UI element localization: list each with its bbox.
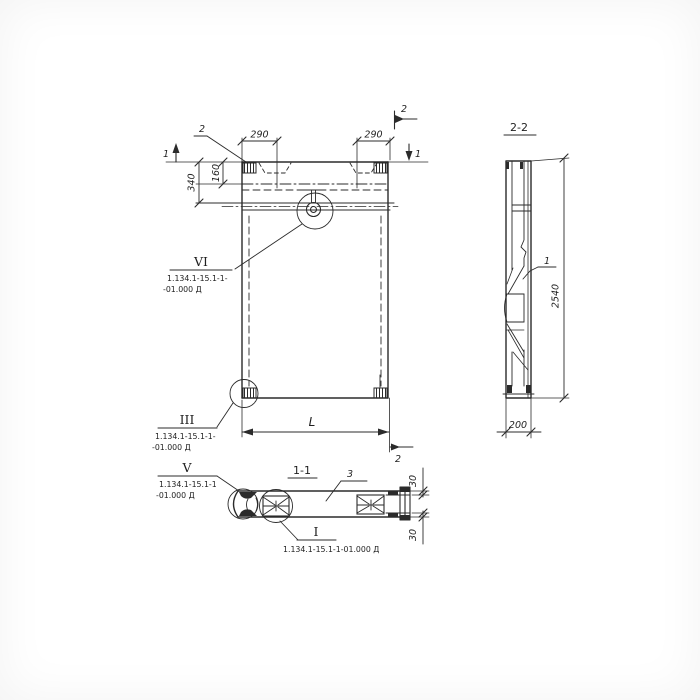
keyway-socket-mid [357, 495, 384, 514]
cut-mark-1-right: 1 [406, 144, 422, 161]
dim-200-value: 200 [509, 420, 527, 431]
lower-diagonal-1 [507, 324, 524, 352]
leader-line [280, 521, 298, 540]
arrow-up-icon [173, 143, 180, 153]
arrow-right-icon [378, 429, 389, 436]
embed-hatch-bottom-right [374, 388, 387, 398]
cap-socket-lines [247, 498, 258, 511]
dim-290-left-value: 290 [250, 130, 268, 141]
leader-line [217, 403, 233, 427]
leader-line [194, 136, 246, 162]
inner-line-right [521, 161, 526, 386]
cut-mark-1-right-label: 1 [415, 149, 421, 160]
cap-wedge-top [239, 492, 257, 499]
drawing-sheet: 290 290 340 160 1 [0, 0, 700, 700]
end-tab-top [388, 491, 398, 496]
leader-line [217, 476, 239, 491]
embed-mark-top-left [506, 162, 509, 169]
detail-i-label: I [314, 524, 319, 539]
dim-2540: 2540 [531, 154, 569, 402]
detail-i-flag: I 1.134.1-15.1-1-01.000 Д [280, 521, 379, 554]
detail-vi-ref2: -01.000 Д [163, 285, 202, 294]
section-2-2-view: 2-2 1 [497, 121, 569, 438]
dim-160: 160 [211, 158, 227, 188]
detail-v-ref2: -01.000 Д [156, 491, 195, 500]
dim-340-value: 340 [187, 173, 198, 191]
part-label-1-value: 1 [544, 256, 550, 267]
cut-mark-1-left: 1 [163, 143, 180, 162]
embed-mark-bottom-left [507, 385, 512, 393]
cut-mark-2-top: 2 [395, 104, 418, 129]
section-outline [506, 161, 531, 398]
section-1-1-view: 1-1 3 [156, 460, 429, 554]
panel-drawing: 290 290 340 160 1 [0, 0, 700, 700]
detail-circle-vi [297, 193, 333, 229]
detail-iii-flag: III 1.134.1-15.1-1- -01.000 Д [152, 403, 233, 452]
detail-v-label: V [181, 460, 192, 475]
dim-200: 200 [497, 398, 541, 438]
funnel-diagonal-inner [507, 268, 513, 284]
callout-2-top-left: 2 [194, 124, 246, 162]
arrow-left-icon [242, 429, 253, 436]
cut-mark-2-top-label: 2 [401, 104, 407, 115]
dim-290-right-value: 290 [364, 130, 382, 141]
callout-2-label: 2 [199, 124, 205, 135]
cut-mark-1-left-label: 1 [163, 149, 169, 160]
detail-i-ref: 1.134.1-15.1-1-01.000 Д [283, 545, 379, 554]
embed-mark-top-right [520, 162, 523, 169]
socket-cross [263, 501, 289, 511]
detail-iii-ref2: -01.000 Д [152, 443, 191, 452]
keyway-pocket [505, 266, 529, 370]
socket-cross [357, 500, 384, 510]
section-1-1-title: 1-1 [293, 464, 311, 477]
end-tab-bottom [388, 513, 398, 518]
funnel-diagonal-upper [508, 266, 524, 294]
detail-v-ref1: 1.134.1-15.1-1 [159, 480, 217, 489]
section-bar [228, 487, 410, 523]
dim-30-bottom: 30 [408, 509, 429, 544]
part-label-3-value: 3 [347, 469, 353, 480]
detail-vi-flag: VI 1.134.1-15.1-1- -01.000 Д [163, 224, 302, 294]
recess-trapezoid-right [350, 163, 377, 173]
dim-340: 340 [187, 158, 204, 207]
step-faces [386, 495, 410, 513]
leader-line [235, 224, 302, 269]
socket-diagonals [357, 496, 384, 513]
section-2-2-title: 2-2 [510, 121, 528, 134]
dim-2540-value: 2540 [551, 284, 562, 308]
detail-iii-label: III [180, 412, 195, 427]
detail-iii-ref1: 1.134.1-15.1-1- [155, 432, 216, 441]
arrow-down-icon [406, 151, 413, 161]
recess-trapezoid-left [259, 163, 291, 173]
part-label-3: 3 [326, 469, 367, 501]
embed-hatch-bottom-left [243, 388, 256, 398]
arrow-right-icon [391, 444, 400, 451]
dim-length-L: L [242, 400, 389, 437]
lower-diagonal-2 [508, 330, 528, 370]
dim-30-top: 30 [408, 468, 429, 499]
dim-290-left: 290 [238, 130, 281, 189]
dim-length-value: L [309, 415, 316, 429]
loop-stem [312, 191, 316, 204]
elevation-view: 290 290 340 160 1 [152, 104, 428, 465]
dim-160-value: 160 [211, 164, 222, 182]
detail-vi-label: VI [193, 254, 208, 269]
detail-v-flag: V 1.134.1-15.1-1 -01.000 Д [156, 460, 239, 500]
pocket-faces [506, 294, 524, 322]
arrow-right-icon [395, 115, 404, 123]
detail-vi-ref1: 1.134.1-15.1-1- [167, 274, 228, 283]
cut-mark-2-bottom-label: 2 [395, 454, 401, 465]
dim-30-top-value: 30 [408, 475, 419, 487]
cut-mark-2-bottom: 2 [390, 398, 414, 465]
end-cap-tab-bottom [400, 515, 410, 520]
bar-left-cap [234, 491, 239, 517]
keyway-socket-i [263, 496, 289, 516]
dim-30-bottom-value: 30 [408, 529, 419, 541]
embed-mark-bottom-right [526, 385, 531, 393]
embed-hatch-top-left [243, 163, 256, 173]
